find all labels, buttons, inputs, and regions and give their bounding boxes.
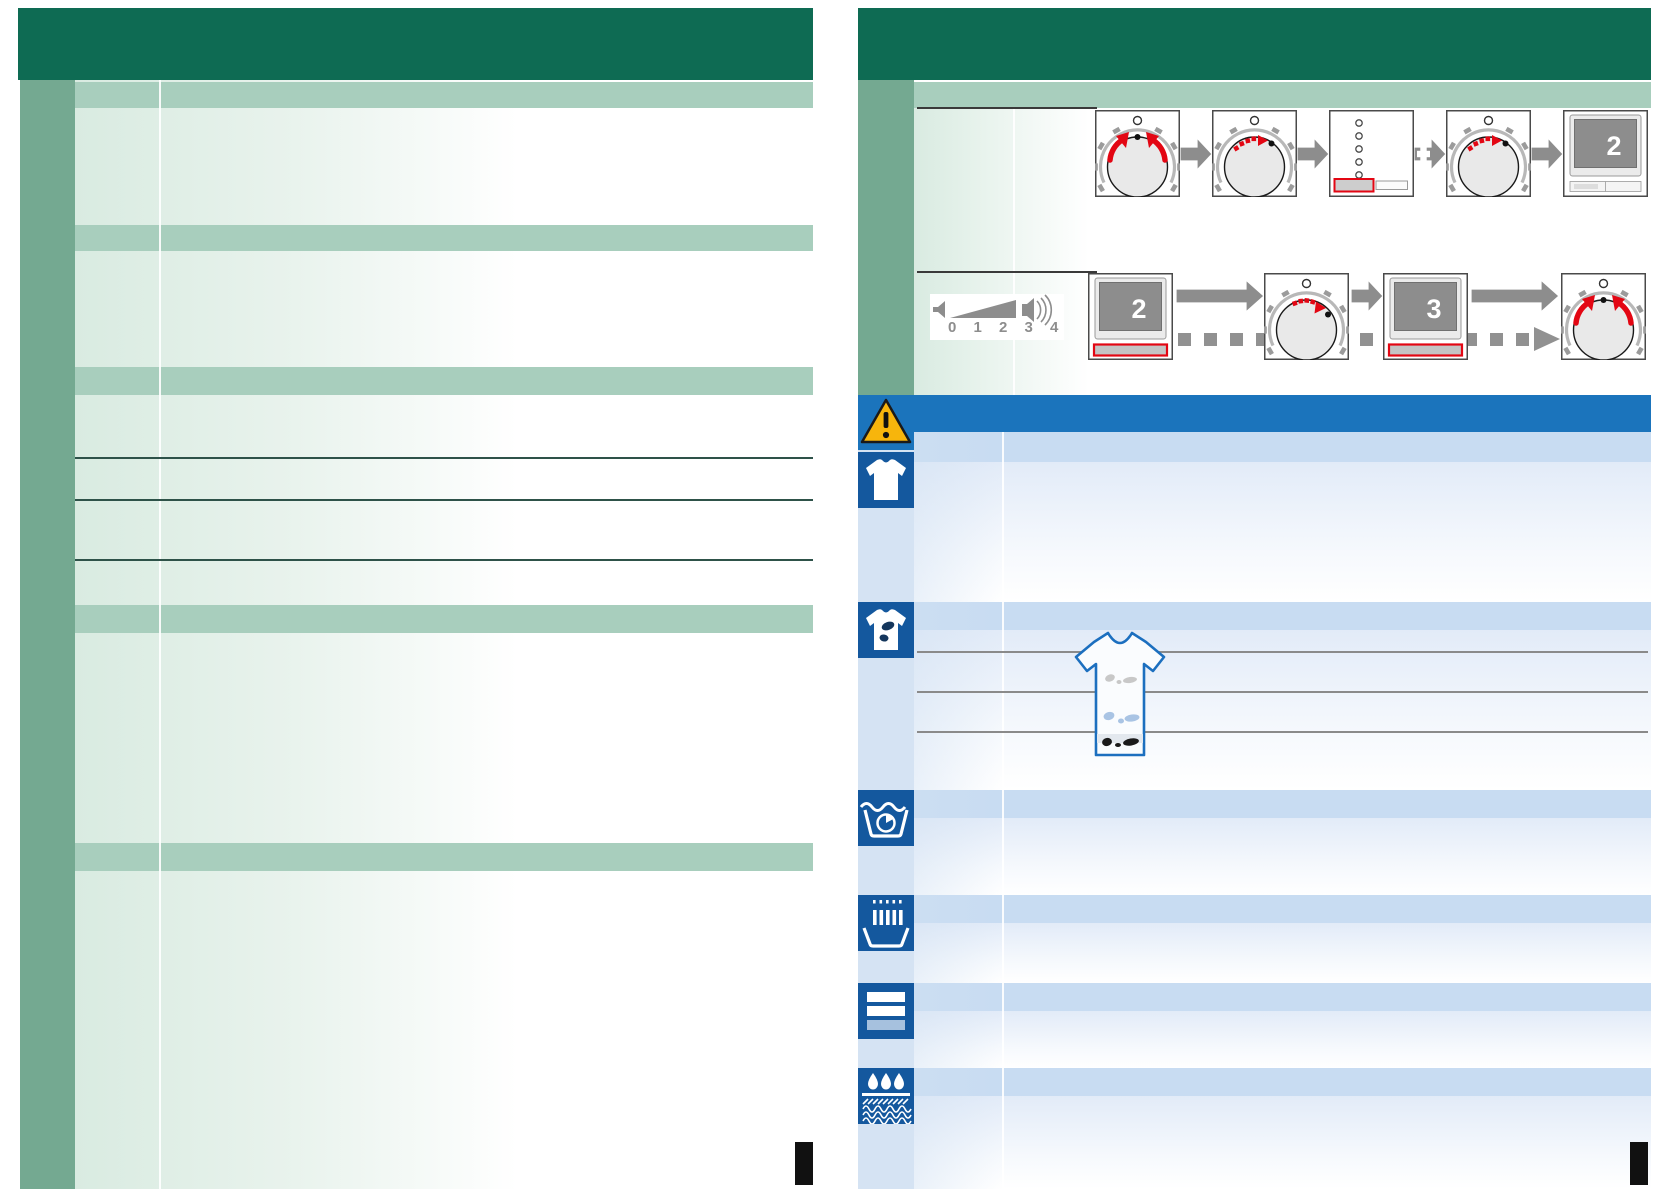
section-band bbox=[75, 605, 813, 633]
rule-line bbox=[75, 499, 813, 501]
display-value: 2 bbox=[1592, 125, 1636, 167]
section-band bbox=[75, 225, 813, 251]
care-row-band bbox=[914, 432, 1651, 462]
care-row-body bbox=[914, 462, 1651, 602]
care-row-band bbox=[914, 790, 1651, 818]
warning-triangle-icon bbox=[858, 395, 914, 450]
stain-row-line bbox=[917, 691, 1648, 693]
stain-row-line bbox=[917, 651, 1648, 653]
right-label-gradient bbox=[914, 108, 1089, 395]
manual-spread: 2 0 1 2 3 4 2 3 bbox=[0, 0, 1680, 1189]
white-shirt-icon bbox=[858, 452, 914, 508]
arrow-plus-icon bbox=[1414, 136, 1446, 172]
long-arrow-right-icon bbox=[1176, 278, 1264, 314]
care-row-body bbox=[914, 630, 1651, 790]
care-row-band bbox=[914, 1068, 1651, 1096]
section-band bbox=[75, 843, 813, 871]
care-row-band bbox=[914, 983, 1651, 1011]
care-row-band bbox=[914, 602, 1651, 630]
right-page-header-bar bbox=[858, 8, 1651, 80]
section-band bbox=[75, 82, 813, 108]
label-column-divider bbox=[159, 80, 161, 1189]
label-column-divider bbox=[1013, 108, 1015, 395]
section-band bbox=[75, 367, 813, 395]
arrow-right-icon bbox=[1351, 278, 1383, 314]
care-row-body bbox=[914, 923, 1651, 983]
care-row-body bbox=[914, 1011, 1651, 1068]
dial-step-adjust-icon bbox=[1446, 110, 1531, 197]
option-buttons-panel-icon bbox=[1329, 110, 1414, 197]
basin-with-bars-icon bbox=[858, 895, 914, 951]
care-row-body bbox=[914, 1096, 1651, 1189]
row1-rule bbox=[917, 107, 1097, 109]
dial-rotate-both-icon bbox=[1561, 273, 1646, 360]
long-arrow-right-icon bbox=[1471, 278, 1559, 314]
wash-tub-timer-icon bbox=[858, 790, 914, 846]
display-value: 2 bbox=[1117, 288, 1161, 330]
dial-step-adjust-icon bbox=[1212, 110, 1297, 197]
right-page-number-marker bbox=[1630, 1142, 1648, 1185]
stained-shirt-icon bbox=[858, 602, 914, 658]
left-page-sidebar bbox=[20, 80, 75, 1189]
warning-header-bar bbox=[858, 395, 1651, 432]
arrow-right-icon bbox=[1531, 136, 1563, 172]
dashed-trail-arrowhead-icon bbox=[1534, 327, 1560, 351]
arrow-right-icon bbox=[1180, 136, 1212, 172]
section-band bbox=[914, 82, 1651, 108]
stained-shirt-illustration bbox=[1074, 630, 1166, 758]
care-row-band bbox=[914, 895, 1651, 923]
label-column-divider bbox=[1002, 432, 1004, 1189]
dial-step-adjust-icon bbox=[1264, 273, 1349, 360]
rule-line bbox=[75, 457, 813, 459]
volume-scale-numbers: 0 1 2 3 4 bbox=[948, 319, 1065, 336]
left-page-number-marker bbox=[795, 1142, 813, 1185]
blue-label-gradient bbox=[914, 432, 1002, 1189]
right-page-sidebar bbox=[858, 80, 914, 395]
display-value: 3 bbox=[1412, 288, 1456, 330]
dial-rotate-both-icon bbox=[1095, 110, 1180, 197]
water-drops-fabric-icon bbox=[858, 1068, 914, 1124]
arrow-right-icon bbox=[1297, 136, 1329, 172]
care-row-body bbox=[914, 818, 1651, 895]
rule-line bbox=[75, 559, 813, 561]
left-page-header-bar bbox=[18, 8, 813, 80]
row2-rule bbox=[917, 271, 1097, 273]
stain-row-line bbox=[917, 731, 1648, 733]
detergent-drawer-icon bbox=[858, 983, 914, 1039]
dashed-progress-trail bbox=[1178, 333, 1536, 346]
